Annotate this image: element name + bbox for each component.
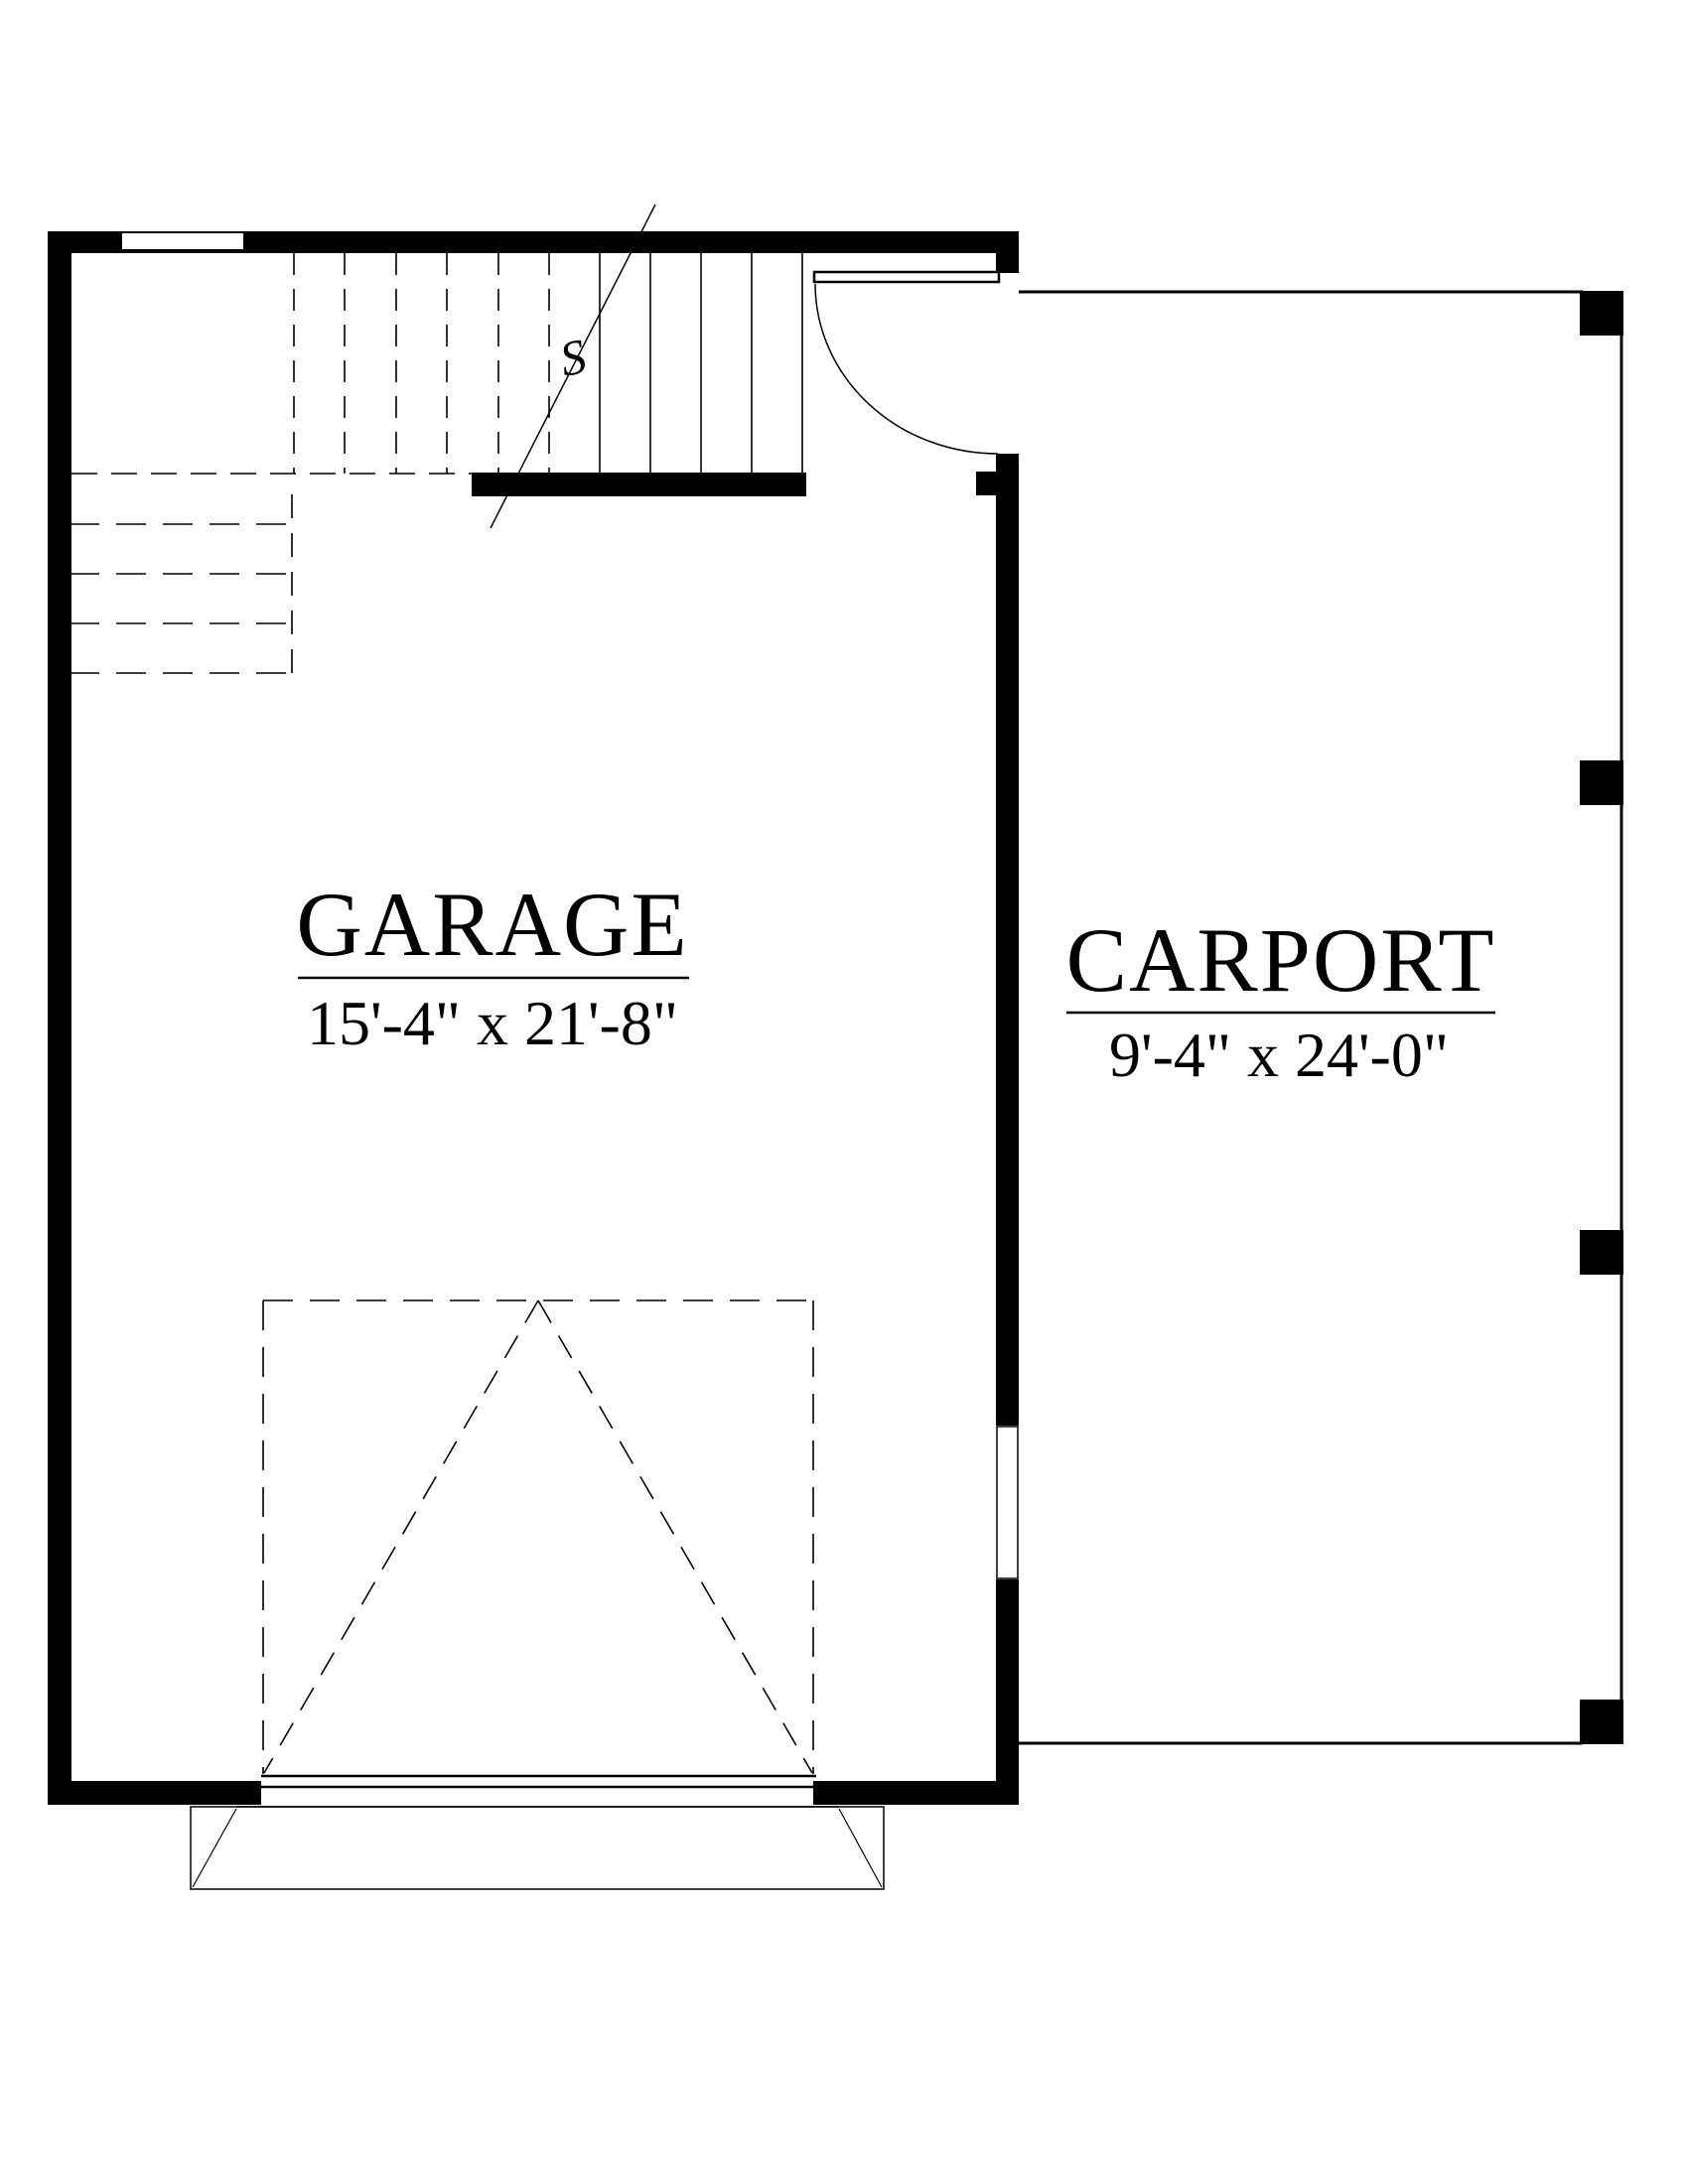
wall-right-middle <box>996 454 1019 1426</box>
stair-side-wall <box>472 473 806 496</box>
paper-background <box>0 0 1688 2184</box>
carport-room-dimensions: 9'-4" x 24'-0" <box>1109 1020 1449 1090</box>
wall-bottom-right <box>813 1781 1019 1805</box>
wall-bottom-left <box>48 1781 261 1805</box>
carport-room-label: CARPORT <box>1066 909 1496 1011</box>
floor-plan-drawing: S <box>0 0 1688 2184</box>
wall-right-upper <box>996 231 1019 273</box>
wall-right-lower <box>996 1579 1019 1805</box>
door-leaf <box>814 272 999 282</box>
carport-post-upper-middle <box>1580 760 1623 805</box>
door-jamb-notch <box>976 472 996 495</box>
wall-left <box>48 231 71 1805</box>
carport-post-top <box>1580 291 1623 336</box>
garage-label-group: GARAGE 15'-4" x 21'-8" <box>296 874 689 1058</box>
window-top-left <box>122 233 243 249</box>
carport-post-lower-middle <box>1580 1230 1623 1275</box>
garage-room-label: GARAGE <box>296 874 688 975</box>
window-right-wall <box>997 1427 1018 1578</box>
garage-room-dimensions: 15'-4" x 21'-8" <box>307 988 678 1058</box>
floor-plan-page: S <box>0 0 1688 2184</box>
carport-post-bottom <box>1580 1700 1623 1744</box>
carport-label-group: CARPORT 9'-4" x 24'-0" <box>1066 909 1496 1090</box>
